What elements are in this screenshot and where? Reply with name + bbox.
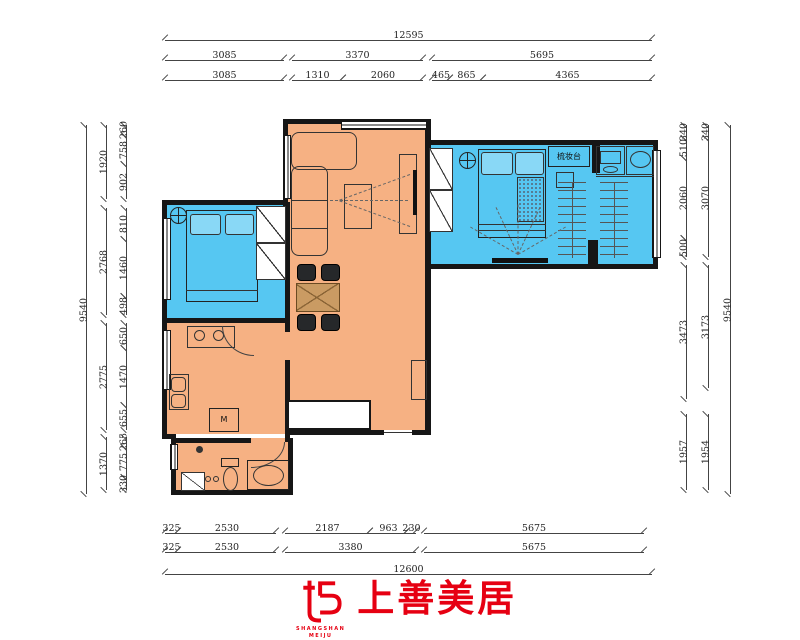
dimension-line: 5695: [432, 60, 652, 61]
dimension-line: 3370: [292, 60, 423, 61]
wash-basin: [253, 465, 284, 486]
bath-door: [181, 472, 205, 491]
dimension-line: 2060: [343, 80, 423, 81]
wardrobe: [256, 206, 286, 243]
entry-threshold: [384, 432, 412, 433]
wall: [425, 140, 658, 145]
washer-drum: [600, 151, 621, 164]
burner: [194, 330, 205, 341]
dimension-value: 2060: [679, 186, 689, 210]
dimension-line: 3173: [708, 265, 709, 388]
dimension-value: 902: [119, 172, 129, 190]
dimension-line: 265: [126, 437, 127, 447]
sink-basin: [171, 394, 186, 408]
dimension-line: 1310: [292, 80, 343, 81]
window: [162, 218, 171, 300]
dimension-value: 3085: [212, 71, 236, 81]
dimension-line: 1460: [126, 239, 127, 296]
drain: [205, 476, 211, 482]
wall: [285, 430, 384, 435]
logo-text: 上善美居: [357, 576, 517, 622]
wall: [425, 266, 431, 435]
toilet: [223, 467, 238, 491]
dimension-value: 963: [379, 524, 397, 534]
dressing-table: 梳妆台: [548, 146, 590, 167]
dimension-value: 810: [119, 214, 129, 232]
pillow: [515, 152, 544, 175]
dimension-value: 5675: [522, 524, 546, 534]
wardrobe: [256, 243, 286, 280]
window: [341, 120, 427, 130]
toilet-tank: [221, 458, 239, 467]
logo-mark-icon: [298, 576, 344, 626]
dimension-value: 5695: [530, 51, 554, 61]
bed-line: [478, 224, 546, 225]
dimension-line: 1920: [106, 125, 107, 199]
dimension-line: 5675: [424, 552, 644, 553]
dimension-value: 5675: [522, 543, 546, 553]
dimension-line: 655: [126, 405, 127, 430]
dimension-line: 902: [126, 164, 127, 199]
dimension-line: 12600: [165, 574, 652, 575]
dimension-value: 2530: [215, 543, 239, 553]
dimension-line: 4365: [483, 80, 652, 81]
wall: [162, 200, 288, 205]
dimension-value: 865: [457, 71, 475, 81]
dimension-line: 810: [126, 208, 127, 239]
dimension-line: 3070: [708, 138, 709, 257]
wall: [173, 438, 251, 443]
shaft: [287, 400, 371, 430]
dimension-value: 3070: [701, 185, 711, 209]
dimension-value: 1310: [305, 71, 329, 81]
pillow: [190, 214, 221, 235]
dimension-value: 4365: [555, 71, 579, 81]
ceiling-light-icon: [459, 152, 476, 169]
dimension-value: 1920: [99, 150, 109, 174]
dimension-value: 1470: [119, 364, 129, 388]
logo-mark: SHANGSHAN MEIJU: [296, 576, 345, 640]
dimension-line: 3473: [686, 265, 687, 399]
pillow: [481, 152, 513, 175]
dimension-value: 1370: [99, 451, 109, 475]
dimension-line: 2768: [106, 208, 107, 315]
dimension-line: 865: [450, 80, 483, 81]
tv: [492, 258, 548, 263]
pillow: [225, 214, 254, 235]
floor-drain: [196, 446, 203, 453]
dimension-line: 758: [126, 135, 127, 164]
dimension-line: 5675: [424, 533, 644, 534]
dimension-value: 12600: [393, 565, 423, 575]
dimension-line: 340: [686, 125, 687, 138]
dimension-line: 498: [126, 296, 127, 315]
dimension-value: 775: [119, 453, 129, 471]
dimension-value: 2775: [99, 364, 109, 388]
closet-partition: [588, 240, 598, 268]
dimension-value: 12595: [393, 31, 423, 41]
dimension-value: 9540: [79, 297, 89, 321]
dimension-value: 655: [119, 408, 129, 426]
dimension-value: 2187: [315, 524, 339, 534]
bed-line: [478, 230, 546, 231]
dimension-line: 330: [126, 477, 127, 490]
dimension-line: 3085: [165, 60, 284, 61]
bed-line: [186, 290, 258, 291]
dimension-line: 775: [126, 447, 127, 477]
dimension-line: 1370: [106, 437, 107, 490]
blanket: [517, 177, 544, 222]
dimension-value: 3173: [701, 314, 711, 338]
dimension-line: 650: [126, 323, 127, 348]
washer-door: [603, 166, 618, 173]
dimension-line: 2060: [686, 158, 687, 238]
wardrobe: [429, 148, 453, 190]
dimension-line: 230: [407, 533, 416, 534]
sink-basin: [171, 377, 186, 392]
dimension-value: 3370: [345, 51, 369, 61]
dining-chair: [297, 314, 316, 331]
dimension-value: 330: [119, 474, 129, 492]
dimension-value: 498: [119, 296, 129, 314]
dimension-value: 230: [402, 524, 420, 534]
dimension-line: 2775: [106, 323, 107, 430]
dimension-value: 2768: [99, 249, 109, 273]
floorplan-canvas: 1259530853370569530851310206046586543653…: [0, 0, 800, 640]
sofa-line: [291, 228, 328, 229]
dimension-line: 500: [686, 238, 687, 257]
window: [170, 444, 178, 470]
wall: [425, 264, 658, 269]
dimension-line: 2530: [178, 533, 276, 534]
dimension-line: 12595: [165, 40, 652, 41]
dimension-line: 260: [126, 125, 127, 135]
dimension-line: 1957: [686, 414, 687, 490]
counter-line: [596, 176, 654, 177]
logo-subtext-1: SHANGSHAN: [296, 626, 345, 633]
dining-table: [296, 283, 340, 312]
logo-subtext-2: MEIJU: [309, 633, 333, 640]
clothes-rail: [558, 182, 586, 258]
dimension-line: 3085: [165, 80, 284, 81]
dimension-value: 758: [119, 140, 129, 158]
dimension-value: 2530: [215, 524, 239, 534]
tv-projection: [518, 205, 519, 255]
dimension-line: 3380: [285, 552, 416, 553]
dimension-value: 500: [679, 238, 689, 256]
clothes-rail: [600, 182, 628, 258]
dining-chair: [321, 314, 340, 331]
brand-logo: SHANGSHAN MEIJU 上善美居: [296, 576, 517, 640]
dimension-value: 1460: [119, 255, 129, 279]
dimension-line: 2187: [285, 533, 370, 534]
sofa: [291, 132, 357, 170]
dimension-value: 3380: [338, 543, 362, 553]
wash-basin: [630, 151, 651, 168]
dimension-value: 1954: [701, 440, 711, 464]
ceiling-light-icon: [170, 207, 187, 224]
dining-chair: [321, 264, 340, 281]
dimension-line: 9540: [86, 125, 87, 494]
dimension-value: 3085: [212, 51, 236, 61]
dimension-line: 1954: [708, 414, 709, 490]
dimension-value: 9540: [723, 297, 733, 321]
dining-chair: [297, 264, 316, 281]
drain: [213, 476, 219, 482]
washing-machine: M: [209, 408, 239, 432]
window: [283, 135, 291, 199]
dimension-line: 2530: [178, 552, 276, 553]
dimension-line: 1470: [126, 348, 127, 405]
dimension-line: 510: [686, 138, 687, 158]
dimension-value: 2060: [371, 71, 395, 81]
tv: [413, 170, 417, 215]
wall: [162, 318, 288, 323]
shoe-cabinet: [411, 360, 427, 400]
dimension-value: 3473: [679, 320, 689, 344]
dimension-value: 1957: [679, 440, 689, 464]
dimension-line: 340: [708, 125, 709, 138]
sofa-chaise: [291, 166, 328, 256]
wardrobe: [429, 190, 453, 232]
sofa-line: [291, 200, 328, 201]
dimension-value: 650: [119, 326, 129, 344]
dimension-line: 9540: [730, 125, 731, 494]
